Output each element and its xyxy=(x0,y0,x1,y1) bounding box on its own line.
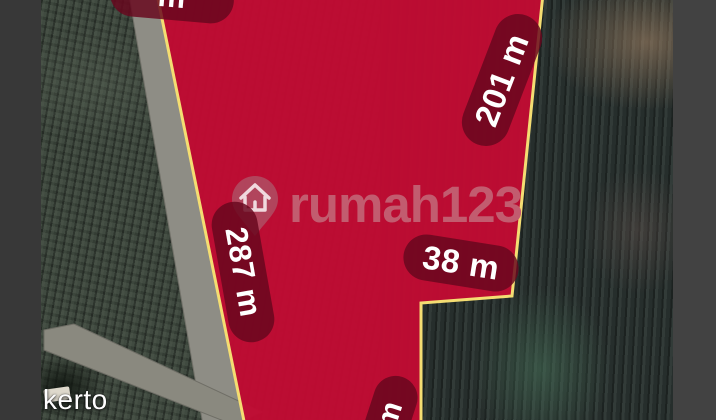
watermark-brand-text: rumah123 xyxy=(289,173,522,237)
listing-map-screenshot: rumah123 m 287 m 201 m 38 m m kerto xyxy=(0,0,716,420)
satellite-map-image: rumah123 m 287 m 201 m 38 m m kerto xyxy=(41,0,673,420)
rumah123-watermark: rumah123 xyxy=(227,172,522,238)
letterbox-left xyxy=(0,0,41,420)
map-place-label: kerto xyxy=(43,384,108,416)
letterbox-right xyxy=(673,0,716,420)
